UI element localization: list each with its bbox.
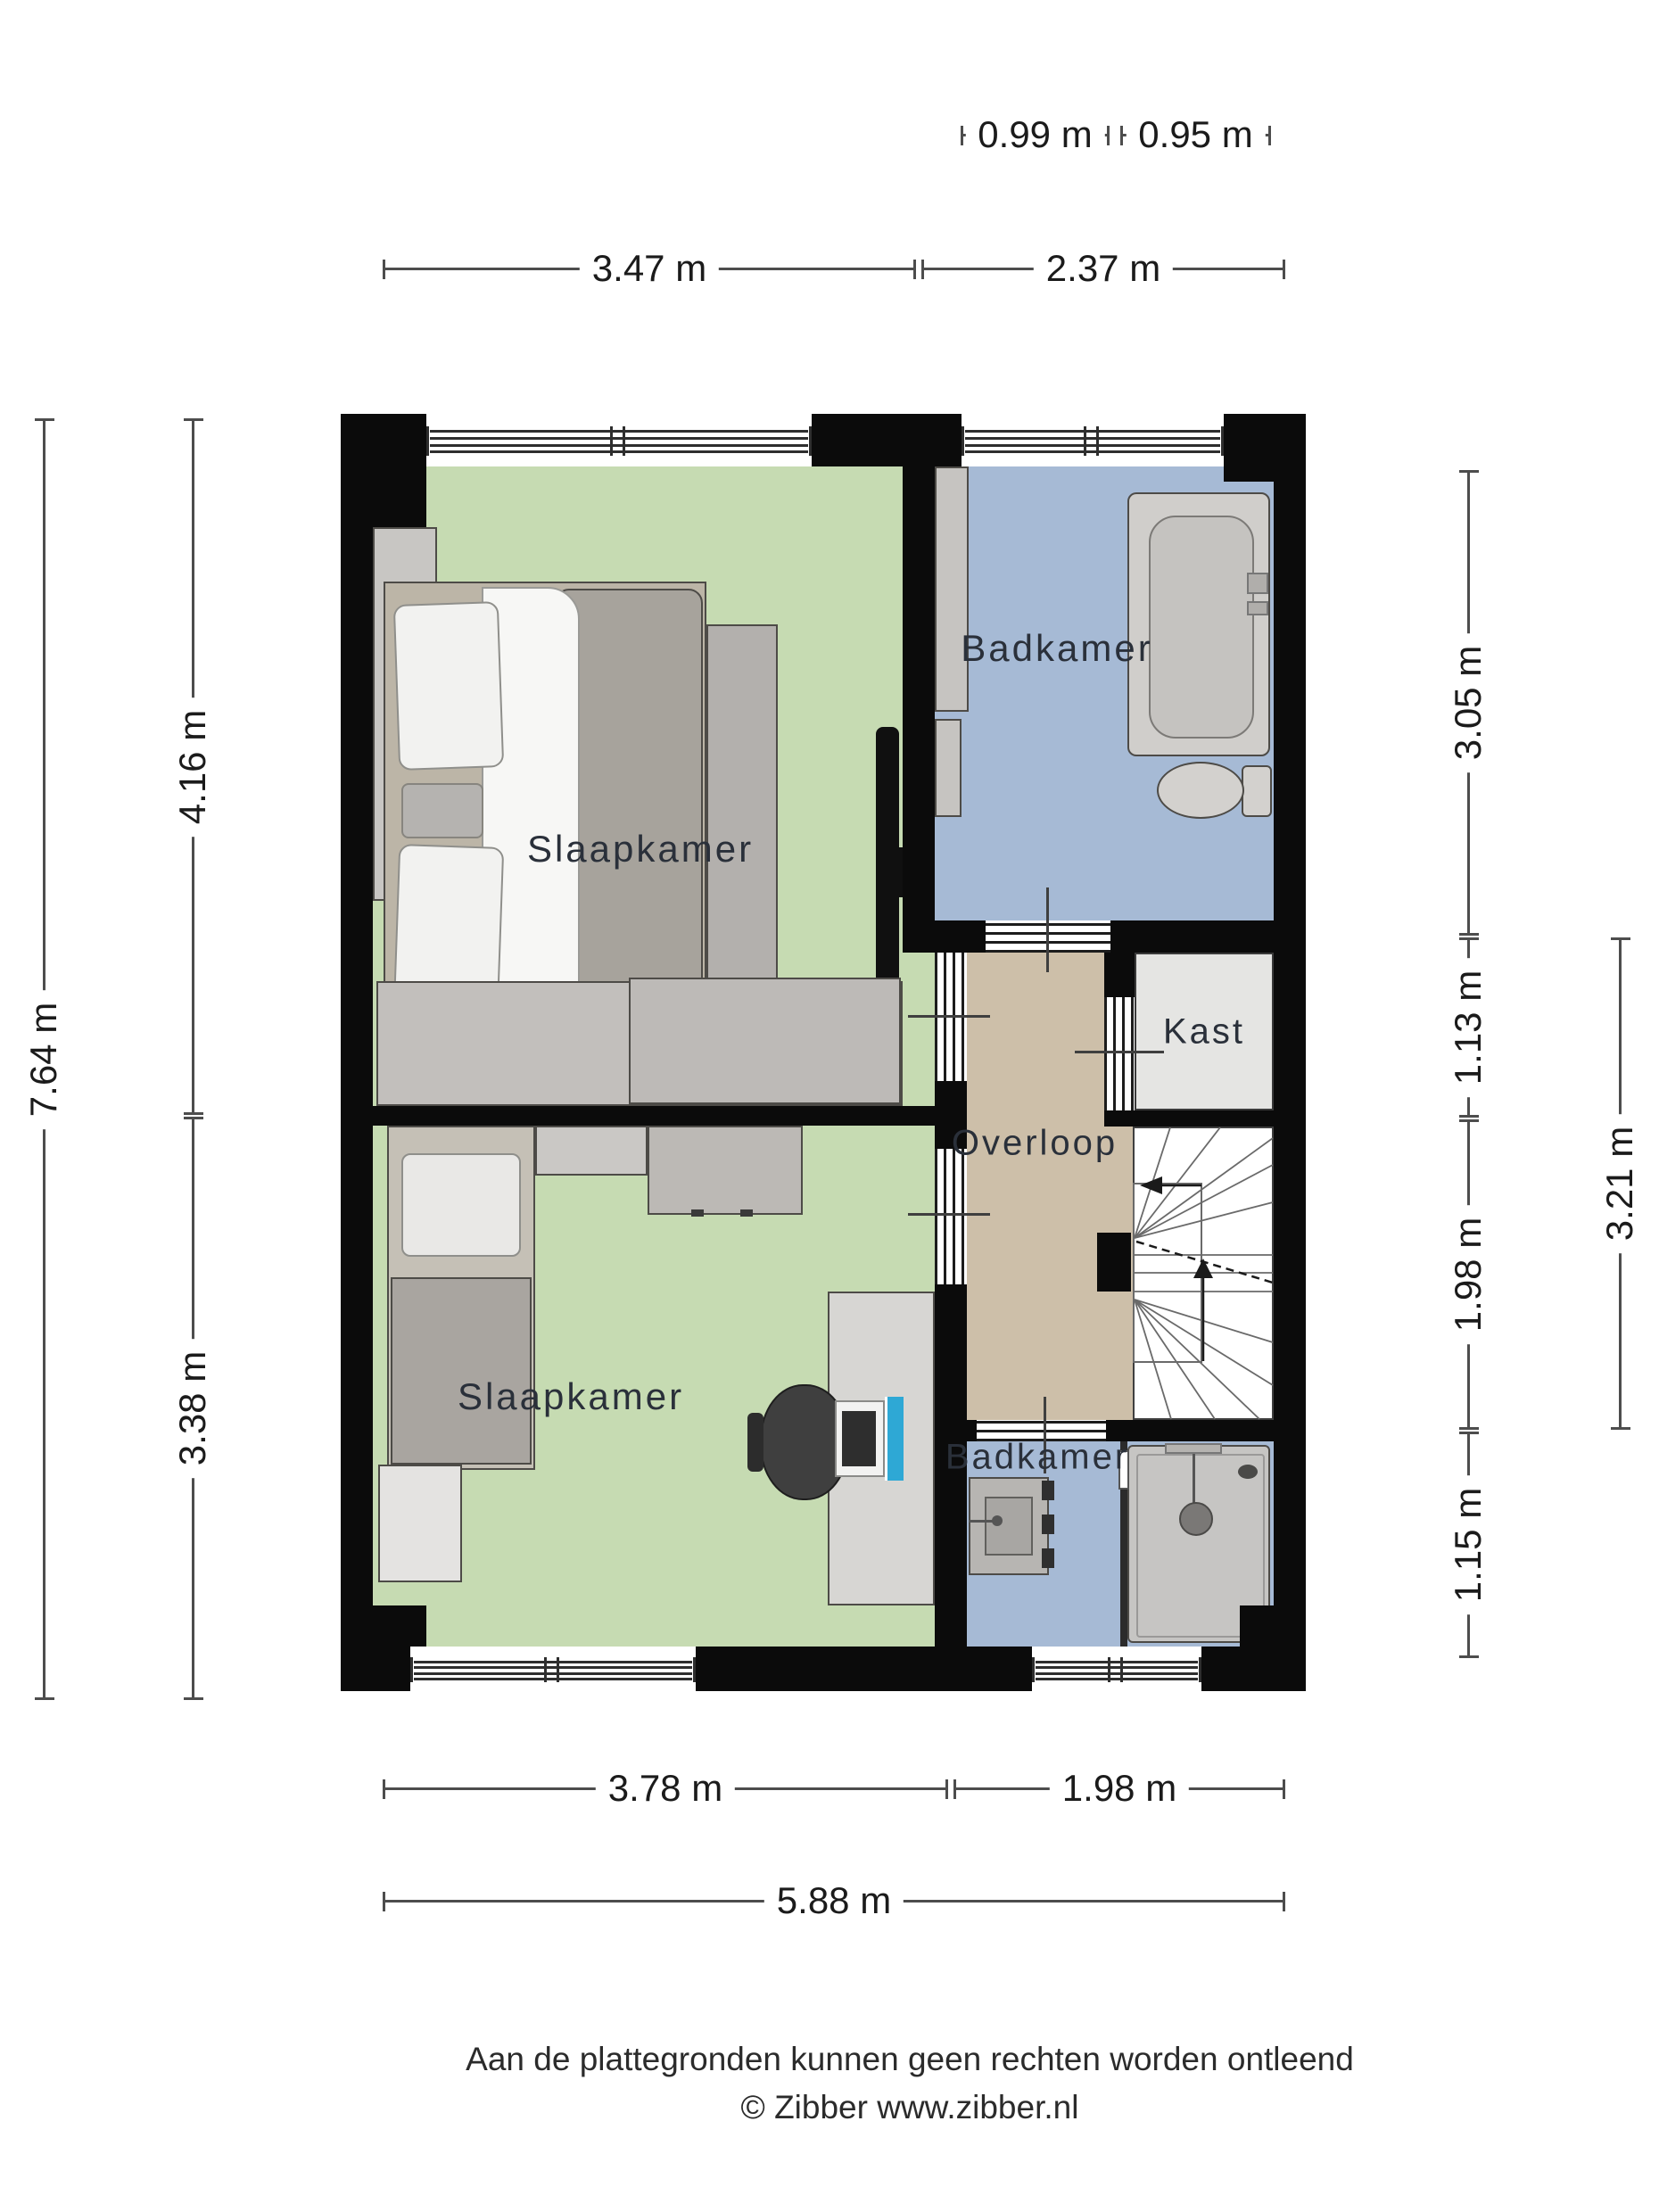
door-mark xyxy=(1046,887,1049,972)
pillar-top-right xyxy=(1224,414,1306,482)
door-mark xyxy=(908,1213,990,1216)
shower-head-line xyxy=(1193,1445,1195,1511)
bathtub-inner xyxy=(1149,516,1254,739)
wall-bathroom-south xyxy=(903,920,986,953)
dimension-right-bathroom-top: 3.05 m xyxy=(1467,471,1470,935)
wall-bathroom-south xyxy=(1110,920,1274,953)
wall-between-bedrooms xyxy=(373,1106,967,1126)
foot-bench xyxy=(706,624,778,995)
copyright-text: © Zibber www.zibber.nl xyxy=(357,2089,1463,2126)
window-bathroom-top xyxy=(962,414,1224,466)
dimension-right-closet: 1.13 m xyxy=(1467,938,1470,1117)
office-chair-back xyxy=(747,1413,763,1472)
bathtub-faucet xyxy=(1247,601,1268,615)
sink-faucet-knob xyxy=(992,1515,1003,1526)
dimension-top-bathroom: 2.37 m xyxy=(922,268,1284,270)
wall-closet-west xyxy=(1104,953,1135,997)
dimension-right-outer: 3.21 m xyxy=(1619,938,1622,1429)
shower-knob xyxy=(1238,1465,1258,1479)
sink-control xyxy=(1042,1515,1054,1534)
floorplan-canvas: Slaapkamer Badkamer Kast Overloop Slaapk… xyxy=(0,0,1659,2212)
laptop-screen xyxy=(885,1397,904,1481)
wardrobe xyxy=(535,1126,648,1176)
bed-pillow xyxy=(393,601,504,771)
dimension-left-bedroom-bottom: 3.38 m xyxy=(192,1118,194,1699)
shower-fitting xyxy=(1165,1443,1222,1454)
toilet-tank xyxy=(1242,765,1272,817)
sink-control xyxy=(1042,1548,1054,1568)
wardrobe-handle xyxy=(740,1209,753,1217)
dimension-left-bedroom-top: 4.16 m xyxy=(192,419,194,1114)
wall-left xyxy=(341,414,373,1691)
room-label-bedroom-top: Slaapkamer xyxy=(527,828,754,871)
room-label-landing: Overloop xyxy=(952,1124,1118,1164)
room-label-bathroom-bottom: Badkamer xyxy=(945,1438,1129,1478)
wardrobe xyxy=(648,1126,803,1215)
wall-right xyxy=(1274,414,1306,1691)
wall-stair-stub xyxy=(1097,1233,1131,1292)
dimension-right-bathroom-bottom: 1.15 m xyxy=(1467,1432,1470,1657)
wall-closet-south xyxy=(1104,1110,1274,1127)
sideboard xyxy=(376,981,903,1106)
window-bedroom-top xyxy=(426,414,812,466)
wall-stairs-south xyxy=(1106,1420,1274,1441)
dimension-window-right: 0.95 m xyxy=(1121,134,1270,136)
pillar-bottom-right xyxy=(1240,1605,1306,1691)
sideboard-right-part xyxy=(629,978,901,1104)
room-label-closet: Kast xyxy=(1163,1012,1245,1052)
bed-duvet xyxy=(391,1277,532,1465)
cabinet xyxy=(378,1465,462,1582)
stairs xyxy=(1133,1127,1274,1420)
wardrobe-handle xyxy=(691,1209,704,1217)
bed-cushion xyxy=(401,783,483,838)
wall-bedroom-bathroom xyxy=(903,466,935,953)
dimension-bottom-bathroom: 1.98 m xyxy=(954,1787,1284,1790)
sink-basin xyxy=(985,1497,1033,1556)
door-bedroom-bottom xyxy=(935,1149,967,1284)
bathroom-cabinet xyxy=(935,719,962,817)
laptop-keyboard xyxy=(842,1411,876,1466)
shower-drain xyxy=(1179,1502,1213,1536)
sink-control xyxy=(1042,1481,1054,1500)
window-bathroom-bottom xyxy=(1032,1647,1201,1691)
door-closet xyxy=(1104,997,1135,1110)
wall-landing-west xyxy=(935,1284,967,1420)
dimension-bottom-bedroom: 3.78 m xyxy=(384,1787,947,1790)
room-label-bedroom-bottom: Slaapkamer xyxy=(458,1375,684,1418)
dimension-bottom-total: 5.88 m xyxy=(384,1900,1284,1902)
bathroom-cabinet xyxy=(935,466,969,712)
door-mark xyxy=(908,1015,990,1018)
bed-pillow xyxy=(401,1153,521,1257)
pillar-top-left xyxy=(341,414,426,527)
dimension-window-left: 0.99 m xyxy=(962,134,1109,136)
tv-icon xyxy=(876,727,899,1018)
dimension-top-bedroom: 3.47 m xyxy=(384,268,915,270)
disclaimer-text: Aan de plattegronden kunnen geen rechten… xyxy=(357,2041,1463,2078)
dimension-right-stairs: 1.98 m xyxy=(1467,1120,1470,1429)
bathtub-faucet xyxy=(1247,573,1268,594)
door-mark xyxy=(1075,1051,1164,1053)
window-bedroom-bottom xyxy=(410,1647,696,1691)
room-label-bathroom-top: Badkamer xyxy=(961,627,1152,670)
dimension-left-total: 7.64 m xyxy=(43,419,45,1699)
toilet-bowl xyxy=(1157,762,1244,819)
